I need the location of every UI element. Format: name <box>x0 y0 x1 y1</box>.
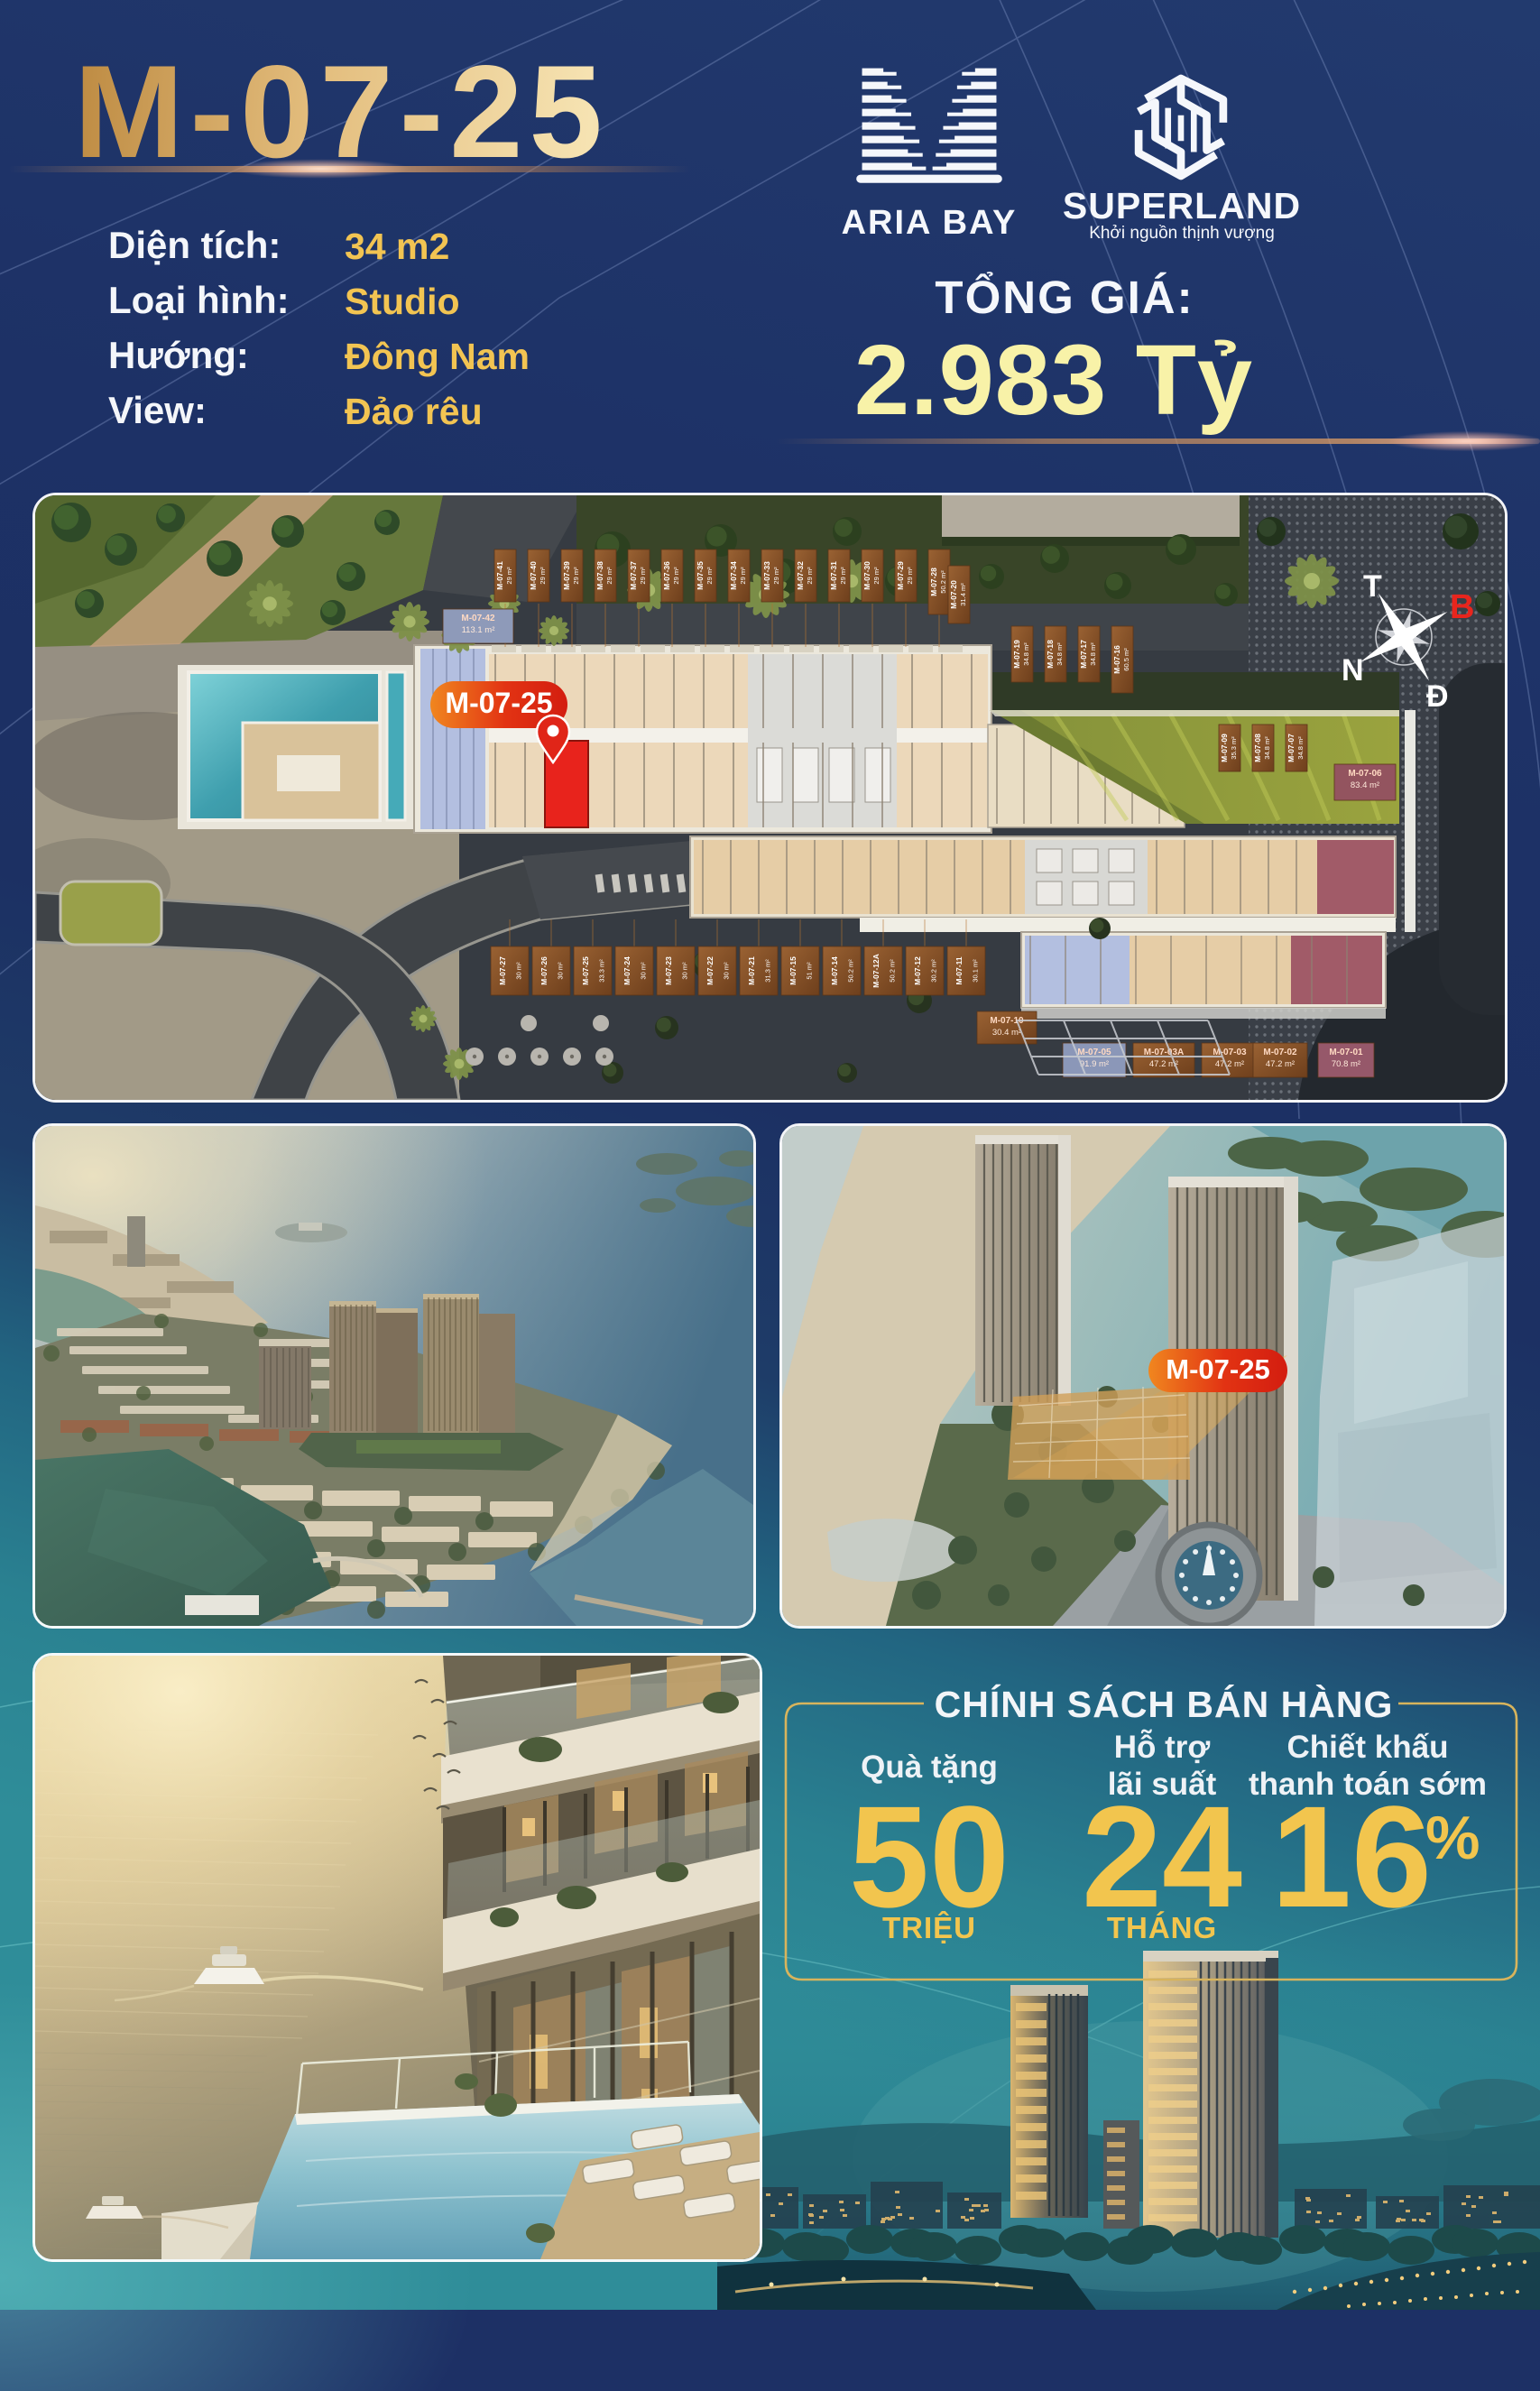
svg-text:M-07-09: M-07-09 <box>1220 734 1229 762</box>
svg-text:30 m²: 30 m² <box>515 962 523 980</box>
svg-text:M-07-16: M-07-16 <box>1112 645 1121 674</box>
svg-text:113.1 m²: 113.1 m² <box>462 625 495 635</box>
svg-text:34.8 m²: 34.8 m² <box>1089 642 1097 666</box>
svg-text:30.1 m²: 30.1 m² <box>972 959 980 983</box>
svg-text:29 m²: 29 m² <box>639 567 647 585</box>
svg-text:M-07-32: M-07-32 <box>796 561 805 590</box>
svg-text:B: B <box>1450 588 1474 626</box>
svg-text:47.2 m²: 47.2 m² <box>1215 1059 1244 1069</box>
svg-text:29 m²: 29 m² <box>605 567 613 585</box>
svg-text:M-07-01: M-07-01 <box>1329 1048 1363 1057</box>
svg-text:83.4 m²: 83.4 m² <box>1351 780 1379 790</box>
svg-text:M-07-06: M-07-06 <box>1348 769 1382 779</box>
svg-text:30.2 m²: 30.2 m² <box>930 959 938 983</box>
svg-text:33.3 m²: 33.3 m² <box>598 959 606 983</box>
svg-text:M-07-42: M-07-42 <box>461 614 495 623</box>
svg-text:34.8 m²: 34.8 m² <box>1296 736 1305 760</box>
svg-text:Đ: Đ <box>1426 679 1449 714</box>
svg-text:50.2 m²: 50.2 m² <box>889 959 897 983</box>
svg-text:34.8 m²: 34.8 m² <box>1056 642 1064 666</box>
svg-text:29 m²: 29 m² <box>672 567 680 585</box>
svg-text:29 m²: 29 m² <box>539 567 547 585</box>
svg-text:M-07-12A: M-07-12A <box>871 954 881 988</box>
svg-text:M-07-38: M-07-38 <box>595 561 604 590</box>
svg-text:34.8 m²: 34.8 m² <box>1022 642 1030 666</box>
svg-text:31.3 m²: 31.3 m² <box>764 959 772 983</box>
svg-text:29 m²: 29 m² <box>772 567 780 585</box>
svg-text:M-07-41: M-07-41 <box>495 561 504 590</box>
svg-text:M-07-39: M-07-39 <box>562 561 571 590</box>
svg-text:M-07-37: M-07-37 <box>629 561 638 590</box>
svg-text:M-07-30: M-07-30 <box>862 561 871 590</box>
svg-text:M-07-18: M-07-18 <box>1046 640 1055 669</box>
svg-text:60.5 m²: 60.5 m² <box>1122 648 1130 671</box>
svg-text:70.8 m²: 70.8 m² <box>1332 1059 1360 1069</box>
svg-text:30 m²: 30 m² <box>681 962 689 980</box>
svg-text:30.4 m²: 30.4 m² <box>992 1028 1021 1038</box>
svg-text:M-07-02: M-07-02 <box>1263 1048 1297 1057</box>
svg-text:51 m²: 51 m² <box>806 962 814 980</box>
svg-text:M-07-17: M-07-17 <box>1079 640 1088 669</box>
svg-text:M-07-15: M-07-15 <box>788 956 798 985</box>
svg-text:50.2 m²: 50.2 m² <box>939 570 947 594</box>
svg-text:M-07-24: M-07-24 <box>622 956 632 985</box>
svg-text:M-07-40: M-07-40 <box>529 561 538 590</box>
svg-text:29 m²: 29 m² <box>872 567 881 585</box>
svg-text:M-07-08: M-07-08 <box>1253 734 1262 762</box>
svg-text:M-07-23: M-07-23 <box>664 956 673 985</box>
svg-text:M-07-34: M-07-34 <box>729 561 738 590</box>
svg-text:91.9 m²: 91.9 m² <box>1080 1059 1109 1069</box>
svg-text:N: N <box>1342 653 1364 688</box>
svg-text:M-07-12: M-07-12 <box>913 956 922 985</box>
svg-text:M-07-25: M-07-25 <box>1166 1353 1269 1385</box>
svg-text:34.8 m²: 34.8 m² <box>1263 736 1271 760</box>
svg-text:M-07-33: M-07-33 <box>762 561 771 590</box>
svg-text:M-07-25: M-07-25 <box>445 687 552 719</box>
svg-text:29 m²: 29 m² <box>839 567 847 585</box>
svg-text:M-07-22: M-07-22 <box>705 956 715 985</box>
svg-text:29 m²: 29 m² <box>705 567 714 585</box>
svg-text:M-07-07: M-07-07 <box>1286 734 1296 762</box>
svg-text:M-07-28: M-07-28 <box>929 568 938 596</box>
svg-text:29 m²: 29 m² <box>906 567 914 585</box>
svg-text:31.4 m²: 31.4 m² <box>959 583 967 606</box>
svg-text:M-07-35: M-07-35 <box>696 561 705 590</box>
svg-text:29 m²: 29 m² <box>806 567 814 585</box>
svg-text:M-07-20: M-07-20 <box>949 580 958 609</box>
svg-text:30 m²: 30 m² <box>723 962 731 980</box>
svg-text:T: T <box>1363 569 1382 604</box>
svg-text:M-07-21: M-07-21 <box>747 956 756 985</box>
svg-text:M-07-36: M-07-36 <box>662 561 671 590</box>
svg-text:29 m²: 29 m² <box>572 567 580 585</box>
svg-text:29 m²: 29 m² <box>739 567 747 585</box>
svg-text:35.3 m²: 35.3 m² <box>1230 736 1238 760</box>
svg-text:30 m²: 30 m² <box>640 962 648 980</box>
svg-text:M-07-25: M-07-25 <box>581 956 590 985</box>
svg-text:29 m²: 29 m² <box>505 567 513 585</box>
svg-text:M-07-27: M-07-27 <box>498 956 507 985</box>
svg-text:M-07-29: M-07-29 <box>896 561 905 590</box>
svg-text:M-07-11: M-07-11 <box>954 956 964 984</box>
svg-text:M-07-31: M-07-31 <box>829 561 838 590</box>
svg-text:M-07-26: M-07-26 <box>539 956 549 985</box>
svg-text:M-07-19: M-07-19 <box>1012 640 1021 669</box>
svg-text:M-07-14: M-07-14 <box>830 956 839 985</box>
svg-text:50.2 m²: 50.2 m² <box>847 959 855 983</box>
svg-text:30 m²: 30 m² <box>557 962 565 980</box>
svg-text:47.2 m²: 47.2 m² <box>1266 1059 1295 1069</box>
